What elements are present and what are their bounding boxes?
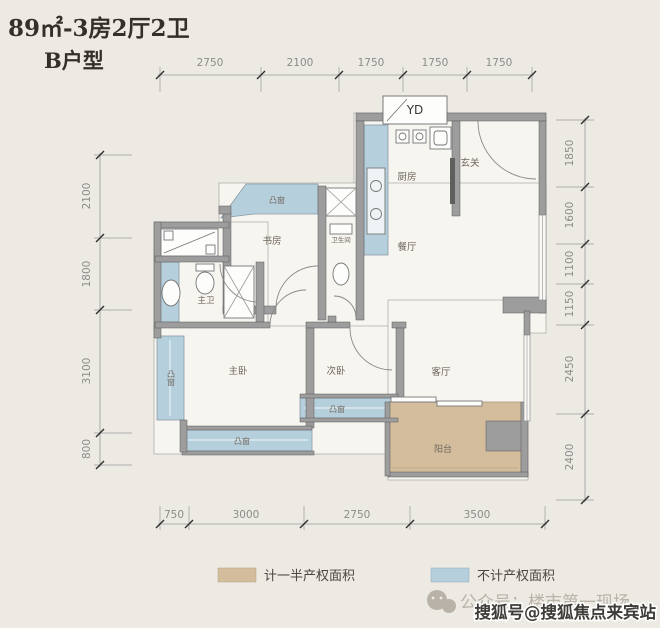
legend-label-half-area: 计一半产权面积 [264, 568, 355, 584]
balcony-label: 阳台 [434, 443, 452, 455]
wechat-icon [427, 590, 456, 613]
legend: 计一半产权面积 不计产权面积 [218, 568, 555, 584]
bay-second-label: 凸窗 [329, 404, 345, 414]
dim-value: 1100 [564, 251, 576, 278]
toilet-bowl [196, 272, 214, 294]
sliding-door-panel [391, 397, 436, 402]
wall-segment [396, 328, 404, 402]
bathroom-sink [333, 263, 349, 285]
dimension-right: 1850 1600 1100 1150 2450 2400 [556, 116, 594, 504]
wall-segment [300, 394, 398, 398]
bay-master-label: 凸窗 [234, 436, 250, 446]
floorplan-canvas: 89㎡-3房2厅2卫 B户型 [0, 0, 660, 624]
bay-left-label: 凸窗 [167, 370, 176, 387]
dim-value: 3000 [233, 509, 260, 521]
dining-label: 餐厅 [397, 241, 417, 253]
wall-segment [392, 322, 406, 328]
dim-value: 750 [164, 509, 184, 521]
closet-cell [206, 245, 215, 254]
dim-value: 1800 [81, 261, 93, 288]
dimension-top: 2750 2100 1750 1750 1750 [156, 57, 536, 92]
masterbath-sink [162, 280, 180, 306]
dim-value: 800 [81, 439, 93, 459]
bathroom-label: 卫生间 [331, 235, 351, 244]
wall-segment [328, 316, 336, 322]
kitchen-sink [367, 168, 385, 234]
wall-segment [184, 426, 312, 430]
wall-segment [356, 121, 364, 320]
wall-segment [154, 222, 161, 338]
dim-extension-lines [160, 67, 532, 92]
masterbed-label: 主卧 [228, 365, 248, 377]
dim-value: 2100 [81, 183, 93, 210]
dim-value: 2750 [344, 509, 371, 521]
page-title: 89㎡-3房2厅2卫 [8, 15, 190, 42]
dim-value: 1150 [564, 291, 576, 318]
dimension-bottom: 750 3000 2750 3500 [156, 506, 549, 530]
wall-segment [155, 322, 270, 328]
wall-segment [219, 206, 231, 214]
wall-segment [182, 451, 314, 455]
legend-label-no-area: 不计产权面积 [477, 568, 555, 584]
entry-label: 玄关 [460, 157, 480, 169]
toilet-tank [196, 264, 214, 271]
dim-value: 2400 [564, 444, 576, 471]
wall-segment [388, 472, 528, 477]
fridge [430, 127, 451, 149]
dim-value: 1600 [564, 202, 576, 229]
stove-burner [413, 130, 426, 143]
sliding-door-panel [437, 401, 482, 406]
wall-segment [300, 418, 398, 422]
dim-value: 1750 [422, 57, 449, 69]
masterbath-label: 主卫 [197, 295, 215, 306]
dim-value: 3500 [464, 509, 491, 521]
wall-segment [155, 256, 229, 262]
wall-segment [306, 322, 350, 328]
unit-type-label: B户型 [44, 48, 104, 73]
closet-cell [164, 231, 173, 240]
wall-segment [524, 311, 530, 335]
sohu-watermark-text: 搜狐号@搜狐焦点来宾站 [475, 602, 657, 622]
kitchen-label: 厨房 [397, 171, 416, 183]
secondbed-label: 次卧 [326, 365, 346, 377]
floorplan-page: 89㎡-3房2厅2卫 B户型 [0, 0, 660, 624]
wechat-bubble-eye [432, 597, 435, 600]
living-label: 客厅 [431, 366, 451, 378]
wall-segment [155, 222, 229, 228]
yd-label: YD [406, 103, 424, 117]
kitchen-door-leaf [450, 158, 455, 204]
legend-swatch-half-area [218, 568, 256, 582]
wall-segment [318, 186, 326, 320]
wechat-bubble-small [442, 599, 456, 613]
dimension-left: 2100 1800 3100 800 [81, 151, 132, 469]
dim-value: 2450 [564, 356, 576, 383]
bathroom-counter [330, 224, 352, 234]
wall-segment [539, 121, 546, 215]
dim-value: 2750 [197, 57, 224, 69]
wall-segment [306, 328, 314, 428]
bay-top-label: 凸窗 [269, 195, 285, 205]
study-label: 书房 [262, 235, 281, 247]
wall-segment [256, 262, 264, 322]
dim-value: 3100 [81, 358, 93, 385]
wall-segment [486, 421, 524, 451]
stove-burner [396, 130, 409, 143]
dim-value: 2100 [287, 57, 314, 69]
dim-value: 1750 [486, 57, 513, 69]
wall-segment [385, 402, 390, 476]
legend-swatch-no-area [431, 568, 469, 582]
watermarks: 公众号：楼市第一现场 搜狐号@搜狐焦点来宾站 [427, 590, 657, 622]
wechat-bubble-eye [440, 597, 443, 600]
wall-segment [180, 420, 187, 452]
dim-value: 1750 [358, 57, 385, 69]
dim-value: 1850 [564, 140, 576, 167]
